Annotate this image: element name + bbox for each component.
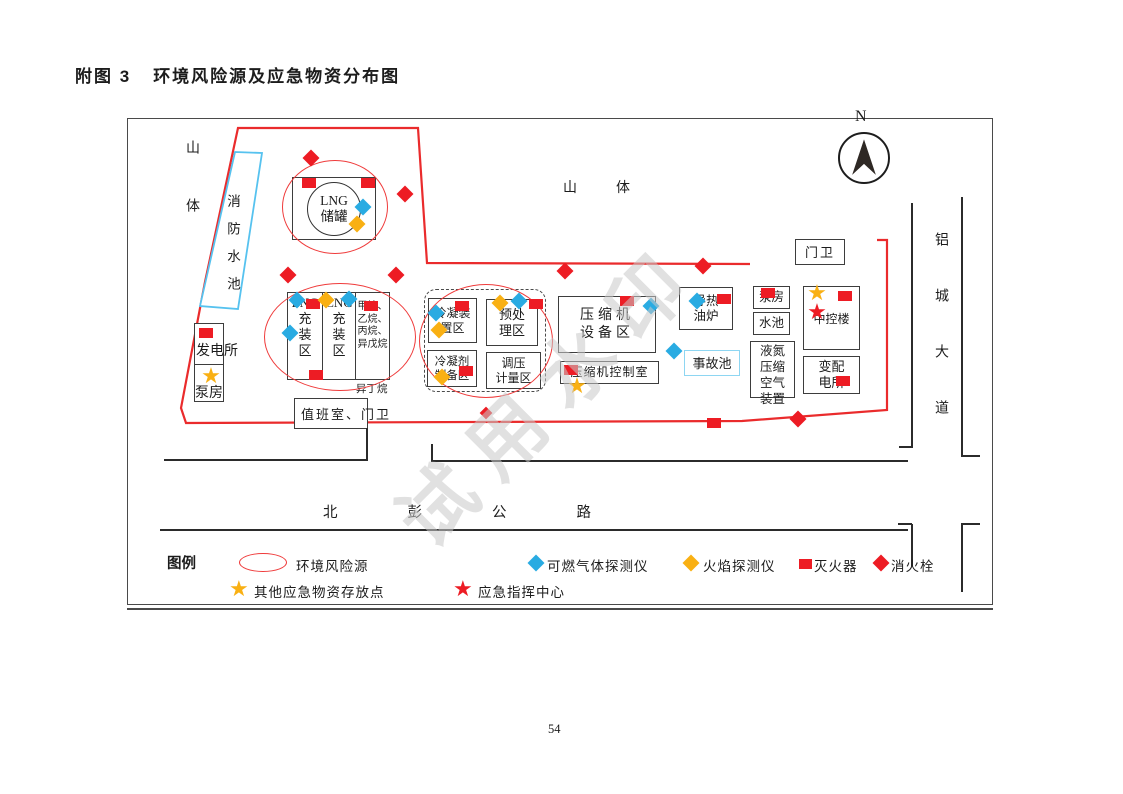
mountain-label-top: 山体	[563, 177, 669, 197]
pump-house-left-label: 泵房	[195, 382, 223, 402]
road-edge-joint-left	[366, 428, 368, 461]
avenue-right-hook	[961, 455, 980, 457]
gate-north-label: 门卫	[805, 245, 835, 260]
avenue-left-hook	[899, 446, 912, 448]
substation-label: 变配 电所	[818, 359, 844, 391]
risk-source-legend-icon	[239, 553, 287, 572]
control-building-label: 中控楼	[813, 312, 849, 327]
avenue-left-line	[911, 203, 913, 448]
mountain-label-left: 山体	[181, 140, 201, 256]
compass-needle-icon	[842, 136, 886, 180]
legend-label-emergency-supplies: 其他应急物资存放点	[254, 581, 385, 601]
substation-block: 变配 电所	[803, 356, 860, 394]
avenue-right-line-south	[961, 524, 963, 592]
road-edge-left	[164, 459, 367, 461]
pump-house-right-block: 泵房	[753, 286, 790, 309]
avenue-name-label: 铝城大道	[930, 232, 950, 456]
compressor-control-block: 压缩机控制室	[560, 361, 659, 384]
north-label: N	[855, 108, 867, 126]
accident-pool-block: 事故池	[684, 350, 740, 376]
fire-extinguisher-legend-icon	[799, 559, 812, 569]
fire-pool-label: 消防水池	[222, 194, 242, 304]
risk-source-ellipse-filling	[264, 283, 416, 391]
duty-room-label: 值班室、门卫	[301, 404, 391, 423]
road-lower-edge	[160, 529, 908, 531]
figure-number: 附图 3	[75, 67, 131, 86]
legend-title: 图例	[167, 552, 196, 573]
compressor-area-block: 压缩机 设备区	[558, 296, 656, 353]
pump-house-right-label: 泵房	[759, 290, 784, 305]
legend-label-gas-detector: 可燃气体探测仪	[547, 555, 649, 575]
gate-north-block: 门卫	[795, 239, 845, 265]
emergency-supplies-legend-icon	[229, 578, 249, 600]
figure-title-text: 环境风险源及应急物资分布图	[153, 67, 400, 86]
block-divider	[195, 364, 223, 365]
water-pool-label: 水池	[759, 316, 784, 331]
legend-label-fire-extinguisher: 灭火器	[814, 555, 858, 575]
figure-title: 附图 3环境风险源及应急物资分布图	[75, 62, 400, 87]
highway-name-label: 北彭公路	[323, 501, 661, 522]
command-center-legend-icon	[453, 578, 473, 600]
compressor-control-label: 压缩机控制室	[570, 365, 648, 380]
control-building-block: 中控楼	[803, 286, 860, 350]
legend-label-fire-hydrant: 消火栓	[891, 555, 935, 575]
avenue-left-hook-south	[898, 523, 912, 525]
risk-source-ellipse-process	[419, 284, 553, 398]
legend-label-risk-source: 环境风险源	[296, 555, 369, 575]
map-frame-bottom-rule	[127, 608, 993, 610]
accident-pool-label: 事故池	[692, 356, 731, 371]
water-pool-block: 水池	[753, 312, 790, 335]
power-station-label: 发电所	[196, 340, 238, 360]
document-page: 附图 3环境风险源及应急物资分布图 山体 山体 消防水池 N 发电所 泵房 LN…	[0, 0, 1123, 794]
risk-source-ellipse-lng-tank	[282, 160, 388, 254]
compressor-area-label: 压缩机 设备区	[580, 307, 634, 343]
page-number: 54	[548, 722, 561, 737]
legend-label-command-center: 应急指挥中心	[478, 581, 565, 601]
legend-label-flame-detector: 火焰探测仪	[703, 555, 776, 575]
oil-furnace-label: 导热 油炉	[693, 294, 718, 324]
ln-air-unit-block: 液氮 压缩 空气 装置	[750, 341, 795, 398]
ln-air-unit-label: 液氮 压缩 空气 装置	[760, 343, 785, 407]
compass-icon	[838, 132, 890, 184]
road-edge-right	[431, 460, 908, 462]
avenue-right-hook-south	[961, 523, 980, 525]
avenue-right-line	[961, 197, 963, 457]
oil-furnace-block: 导热 油炉	[679, 287, 733, 330]
